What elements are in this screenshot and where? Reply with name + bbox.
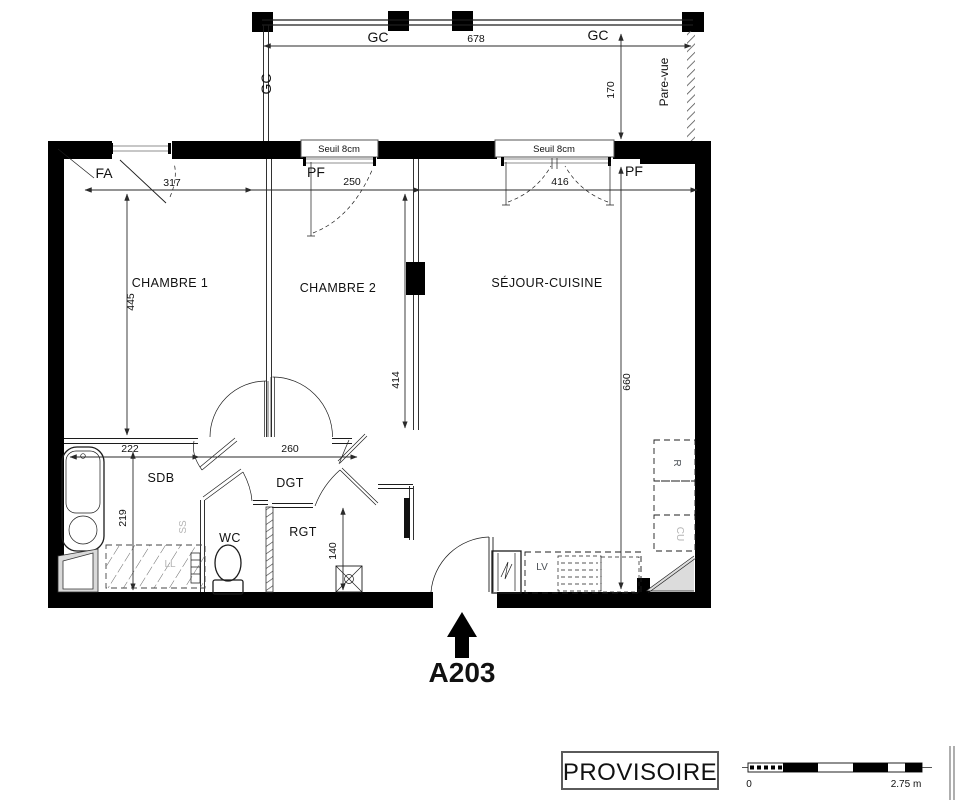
floor-drain [336, 566, 362, 592]
seuil-label-left: Seuil 8cm [318, 144, 360, 155]
bathtub-inner [66, 451, 100, 513]
entrance-mark: A203 [429, 612, 496, 688]
dim-416: 416 [551, 176, 569, 188]
room-sdb: SDB [148, 471, 175, 485]
unit-label: A203 [429, 657, 496, 688]
wc-door-leaf [203, 469, 243, 500]
dim-445: 445 [125, 293, 137, 311]
room-sejour: SÉJOUR-CUISINE [491, 275, 602, 290]
dim-219: 219 [117, 509, 129, 527]
pf1-sill [305, 159, 375, 163]
railing-post [682, 12, 704, 32]
floor-drain-cross [336, 566, 362, 592]
wc-rgt-partition [266, 507, 273, 592]
dishwasher-label: LV [536, 562, 548, 573]
pf1-french-door: Seuil 8cm PF [301, 140, 378, 236]
fa-window-sill [112, 146, 170, 151]
gc-label-left: GC [258, 74, 274, 95]
column [406, 262, 425, 295]
gc-label-top-right: GC [588, 27, 609, 43]
pf1-label: PF [307, 164, 325, 180]
exterior-walls [48, 141, 711, 608]
dim-660: 660 [621, 373, 633, 391]
room-wc: WC [219, 531, 241, 545]
rgt-door-leaf [340, 468, 378, 505]
room-dgt: DGT [276, 476, 304, 490]
wc-door-swing [243, 472, 252, 501]
title-block: PROVISOIRE 0 2.75 m [562, 746, 954, 800]
guardrail-top [262, 20, 693, 25]
wall-right [695, 141, 711, 608]
bathtub-faucet [81, 454, 86, 459]
wall-top-c [377, 141, 497, 159]
pf2-cap [608, 157, 611, 166]
rgt-top-wall [272, 504, 313, 508]
pare-vue-label: Pare-vue [657, 57, 671, 106]
dim-170: 170 [605, 81, 617, 99]
kitchen: LV R CU [492, 440, 695, 593]
scale-bar-dot [757, 766, 761, 770]
fa-window-cap [110, 143, 113, 154]
wall-seg-dgt-sejour [332, 439, 352, 444]
scale-max: 2.75 m [891, 779, 922, 790]
sink-lines [561, 563, 598, 584]
balcony: GC GC GC Pare-vue 678 170 [252, 11, 704, 141]
fa-label: FA [95, 165, 113, 181]
sdb-door-swing [193, 441, 202, 470]
dim-140: 140 [327, 542, 339, 560]
radiator [404, 498, 410, 538]
kitchen-box [654, 481, 695, 515]
dim-250: 250 [343, 176, 361, 188]
scale-bar-segment [783, 763, 818, 772]
entrance-door-swing [431, 537, 489, 592]
chambre2-door-swing [273, 377, 333, 437]
dim-260: 260 [281, 443, 299, 455]
pf1-cap [303, 157, 306, 166]
cooktop-label: CU [674, 527, 685, 541]
washer-label: LL [164, 559, 176, 570]
room-chambre2: CHAMBRE 2 [300, 281, 377, 295]
page-frame-edge [950, 746, 954, 800]
entrance-arrow-icon [447, 612, 477, 637]
scale-bar-dot [771, 766, 775, 770]
dim-678: 678 [467, 33, 485, 45]
floor-plan-svg: GC GC GC Pare-vue 678 170 FA [0, 0, 959, 800]
dim-222: 222 [121, 443, 139, 455]
scale-bar-segment [905, 763, 922, 772]
dimensions: 317 250 416 445 414 660 222 260 219 140 [70, 167, 697, 590]
pf2-label: PF [625, 163, 643, 179]
toilet-bowl [215, 545, 241, 581]
chambre1-door-swing [210, 381, 266, 437]
counter-unit [601, 557, 639, 592]
railing-post [252, 12, 273, 32]
dim-414: 414 [390, 371, 402, 389]
scale-bar: 0 2.75 m [742, 763, 932, 790]
fa-window-cap [168, 143, 171, 154]
entrance-arrow-shaft [455, 637, 469, 658]
wc-top-wall [253, 501, 268, 505]
fixtures: LL SS [58, 447, 410, 594]
bathtub-foot [69, 516, 97, 544]
room-labels: CHAMBRE 1 CHAMBRE 2 SÉJOUR-CUISINE SDB D… [132, 275, 603, 545]
scale-bar-segment [853, 763, 888, 772]
railing-post [388, 11, 409, 31]
wall-bottom-right [497, 592, 711, 608]
pf2-cap [501, 157, 504, 166]
gc-label-top-left: GC [368, 29, 389, 45]
water-heater-zigzag [501, 562, 512, 579]
scale-bar-dot [764, 766, 768, 770]
scale-bar-dot [778, 766, 782, 770]
washer-zone [106, 545, 205, 588]
seuil-label-right: Seuil 8cm [533, 144, 575, 155]
pf2-sill [503, 159, 610, 163]
pf1-cap [373, 157, 376, 166]
sink-unit [558, 556, 601, 591]
rgt-door-swing [315, 470, 340, 506]
stamp-label: PROVISOIRE [563, 759, 717, 786]
sdb-door-leaf [200, 438, 237, 470]
fridge-label: R [671, 459, 682, 466]
toilet-tank [213, 580, 243, 594]
floor-plan-canvas: GC GC GC Pare-vue 678 170 FA [0, 0, 959, 800]
wall-top-b [172, 141, 303, 159]
railing-post [452, 11, 473, 31]
pare-vue-screen [687, 31, 695, 141]
scale-bar-dot [750, 766, 754, 770]
bathtub [62, 447, 104, 551]
dim-317: 317 [163, 177, 181, 189]
towel-dryer-label: SS [178, 520, 189, 534]
room-chambre1: CHAMBRE 1 [132, 276, 209, 290]
room-rgt: RGT [289, 525, 317, 539]
scale-zero: 0 [746, 779, 752, 790]
